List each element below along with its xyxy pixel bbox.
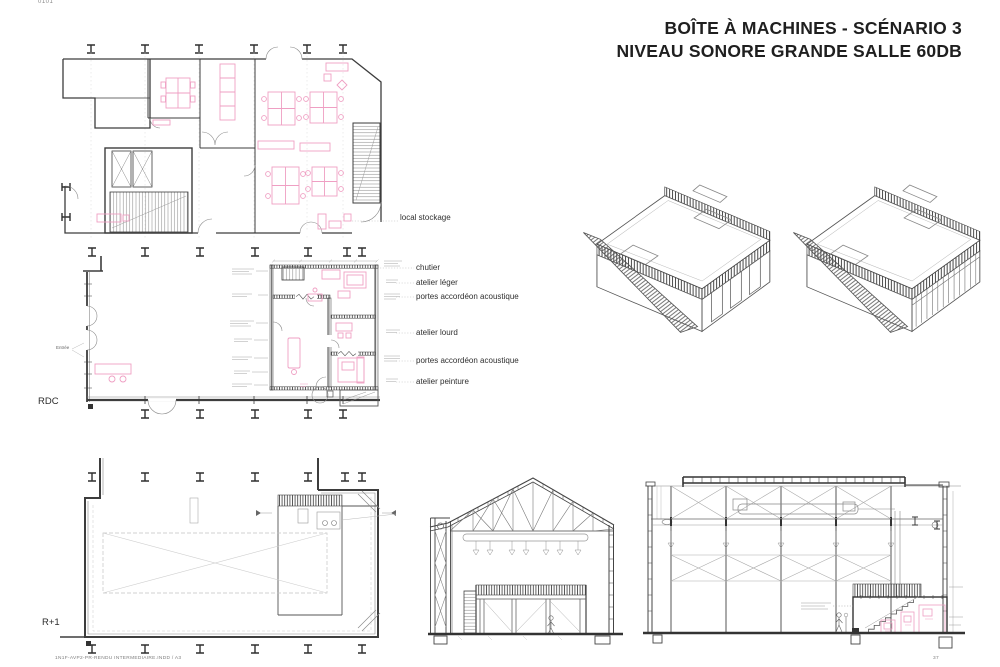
label-atelier-peinture: atelier peinture bbox=[416, 378, 469, 386]
label-chutier: chutier bbox=[416, 264, 440, 272]
footer-page-number: 37 bbox=[933, 657, 939, 662]
axonometric-view-1 bbox=[583, 185, 769, 332]
axonometric-view-2 bbox=[793, 185, 979, 332]
title-block: BOÎTE À MACHINES - SCÉNARIO 3 NIVEAU SON… bbox=[616, 17, 962, 63]
long-section bbox=[643, 477, 965, 648]
machine-box-plan bbox=[270, 260, 379, 407]
column-grid-symbols bbox=[62, 45, 366, 653]
title-line-2: NIVEAU SONORE GRANDE SALLE 60DB bbox=[616, 40, 962, 63]
footer-filename: 1N1F-AVP2-PR-RENDU INTERMEDIAIRE.INDD / … bbox=[55, 657, 181, 662]
label-floor-r1: R+1 bbox=[42, 618, 60, 628]
plan-rdc-offices bbox=[63, 47, 381, 238]
label-entree: Entrée bbox=[56, 346, 69, 351]
drawing-sheet: 0101 BOÎTE À MACHINES - SCÉNARIO 3 NIVEA… bbox=[0, 0, 1000, 667]
plan-rdc-hall bbox=[72, 221, 414, 414]
label-floor-rdc: RDC bbox=[38, 397, 59, 407]
label-atelier-leger: atelier léger bbox=[416, 279, 458, 287]
cross-section bbox=[428, 478, 623, 644]
label-local-stockage: local stockage bbox=[400, 214, 451, 222]
plan-r1 bbox=[60, 458, 396, 646]
title-line-1: BOÎTE À MACHINES - SCÉNARIO 3 bbox=[616, 17, 962, 40]
label-portes-accordeon-2: portes accordéon acoustique bbox=[416, 357, 519, 365]
drawings-linework bbox=[0, 0, 1000, 667]
label-atelier-lourd: atelier lourd bbox=[416, 329, 458, 337]
label-portes-accordeon-1: portes accordéon acoustique bbox=[416, 293, 519, 301]
sheet-number: 0101 bbox=[38, 0, 53, 5]
